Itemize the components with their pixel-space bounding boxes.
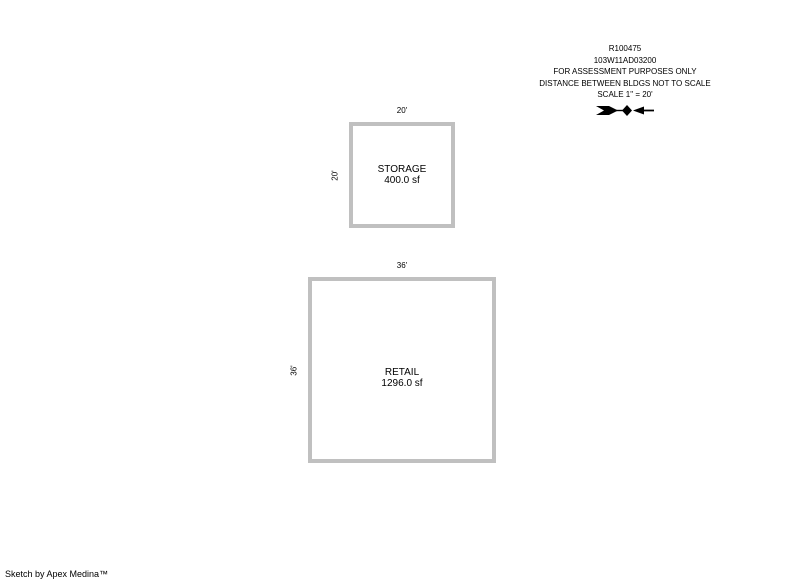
retail-building-outline: RETAIL 1296.0 sf (308, 277, 496, 463)
storage-height-dimension-label: 20' (331, 170, 340, 180)
retail-height-dimension-label: 36' (290, 365, 299, 375)
retail-building-name: RETAIL (381, 367, 422, 378)
sketch-header: R100475 103W11AD03200 FOR ASSESSMENT PUR… (505, 43, 745, 117)
retail-building-area: 1296.0 sf (381, 378, 422, 389)
storage-building-outline: STORAGE 400.0 sf (349, 122, 455, 228)
parcel-id: R100475 (505, 43, 745, 55)
storage-building-area: 400.0 sf (378, 175, 427, 186)
retail-width-dimension: 36' (308, 260, 496, 272)
storage-building-name: STORAGE (378, 164, 427, 175)
storage-width-dimension: 20' (349, 105, 455, 117)
distance-disclaimer: DISTANCE BETWEEN BLDGS NOT TO SCALE (505, 78, 745, 90)
sketch-credit: Sketch by Apex Medina™ (5, 569, 108, 579)
north-arrow-icon (505, 104, 745, 117)
assessment-disclaimer: FOR ASSESSMENT PURPOSES ONLY (505, 66, 745, 78)
map-taxlot-number: 103W11AD03200 (505, 55, 745, 67)
scale-note: SCALE 1" = 20' (505, 89, 745, 101)
retail-height-dimension: 36' (287, 277, 301, 463)
sketch-canvas: R100475 103W11AD03200 FOR ASSESSMENT PUR… (0, 0, 800, 587)
storage-height-dimension: 20' (328, 122, 342, 228)
